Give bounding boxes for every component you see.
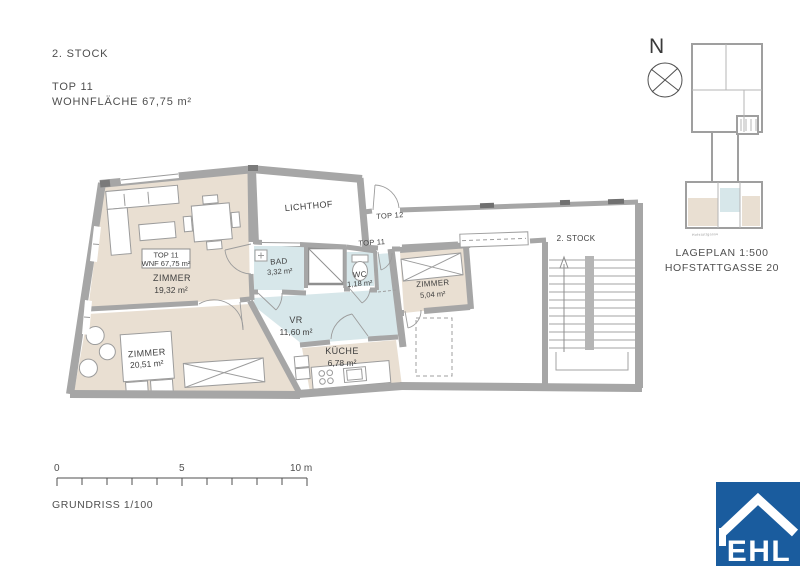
scale-0: 0 bbox=[54, 463, 60, 474]
bath-name: BAD bbox=[270, 256, 288, 266]
logo-wall bbox=[719, 528, 726, 546]
wall-corridor-south bbox=[400, 386, 642, 388]
scale-10: 10 m bbox=[290, 463, 312, 474]
chair bbox=[231, 212, 240, 228]
door-small-room bbox=[405, 310, 421, 328]
floorplan-canvas: 2. STOCK TOP 11 WOHNFLÄCHE 67,75 m² bbox=[0, 0, 800, 566]
corner-mark bbox=[248, 165, 258, 171]
wall-wc-south bbox=[344, 289, 377, 290]
lageplan-caption1: LAGEPLAN 1:500 bbox=[675, 247, 768, 259]
small-room-area: 5,04 m² bbox=[420, 289, 446, 300]
wall-top12-long bbox=[364, 202, 638, 212]
hall-name: VR bbox=[289, 315, 302, 325]
ehl-logo: EHL bbox=[716, 482, 800, 566]
side-table bbox=[99, 343, 116, 360]
scale-bar: 0 5 10 m GRUNDRISS 1/100 bbox=[52, 463, 312, 511]
dining-table bbox=[191, 203, 232, 242]
header: 2. STOCK TOP 11 WOHNFLÄCHE 67,75 m² bbox=[52, 48, 192, 108]
wall-bath-south bbox=[254, 292, 306, 293]
chimney-mark bbox=[608, 199, 624, 205]
siteplan-stair bbox=[737, 116, 758, 134]
staircase-label: 2. STOCK bbox=[557, 234, 596, 243]
top12-label: TOP 12 bbox=[376, 210, 404, 221]
chimney-mark bbox=[560, 200, 570, 205]
corner-mark bbox=[100, 179, 111, 187]
scale-ticks bbox=[57, 478, 307, 486]
kitchen-name: KÜCHE bbox=[325, 346, 359, 356]
shaft bbox=[308, 248, 344, 284]
north-letter: N bbox=[649, 35, 664, 58]
north-arrow: N bbox=[648, 35, 682, 97]
compass-needle bbox=[652, 68, 678, 92]
kitchen-cabinet bbox=[295, 368, 310, 380]
stair-divider bbox=[585, 256, 594, 350]
unit-label: TOP 11 bbox=[52, 81, 94, 93]
kitchen-area: 6,78 m² bbox=[328, 358, 357, 368]
logo-text: EHL bbox=[727, 535, 792, 566]
dashed-zone bbox=[416, 318, 452, 376]
staircase bbox=[549, 256, 635, 370]
wc-area: 1,18 m² bbox=[347, 278, 373, 289]
siteplan-corridor bbox=[712, 132, 738, 182]
siteplan-unit-beige bbox=[688, 198, 718, 226]
door-top12 bbox=[373, 185, 399, 210]
street-label: Hofstattgasse bbox=[692, 232, 719, 237]
siteplan-unit-blue bbox=[720, 188, 740, 212]
chair bbox=[202, 195, 218, 204]
wall-lichthof-west bbox=[253, 170, 256, 244]
lageplan-caption2: HOFSTATTGASSE 20 bbox=[665, 262, 779, 274]
living-area-label: WOHNFLÄCHE 67,75 m² bbox=[52, 96, 192, 108]
chair bbox=[206, 241, 222, 250]
coffee-table bbox=[139, 222, 176, 241]
chimney-mark bbox=[480, 203, 494, 208]
wall-wc-east bbox=[375, 251, 377, 290]
siteplan-unit-beige2 bbox=[742, 196, 760, 226]
living-name: ZIMMER bbox=[153, 273, 191, 283]
unit-box-line2: WNF 67,75 m² bbox=[142, 259, 191, 268]
stair-landing bbox=[556, 352, 628, 370]
kitchen-cabinet bbox=[294, 356, 309, 368]
hall-area: 11,60 m² bbox=[280, 327, 313, 337]
toilet-tank bbox=[352, 255, 368, 262]
bath-area: 3,32 m² bbox=[267, 266, 293, 277]
living-area: 19,32 m² bbox=[154, 285, 188, 295]
floor-label: 2. STOCK bbox=[52, 48, 108, 60]
sofa-side bbox=[107, 208, 131, 256]
chair bbox=[183, 216, 192, 232]
grundriss-caption: GRUNDRISS 1/100 bbox=[52, 499, 153, 511]
scale-5: 5 bbox=[179, 463, 185, 474]
top11-label: TOP 11 bbox=[358, 237, 385, 248]
